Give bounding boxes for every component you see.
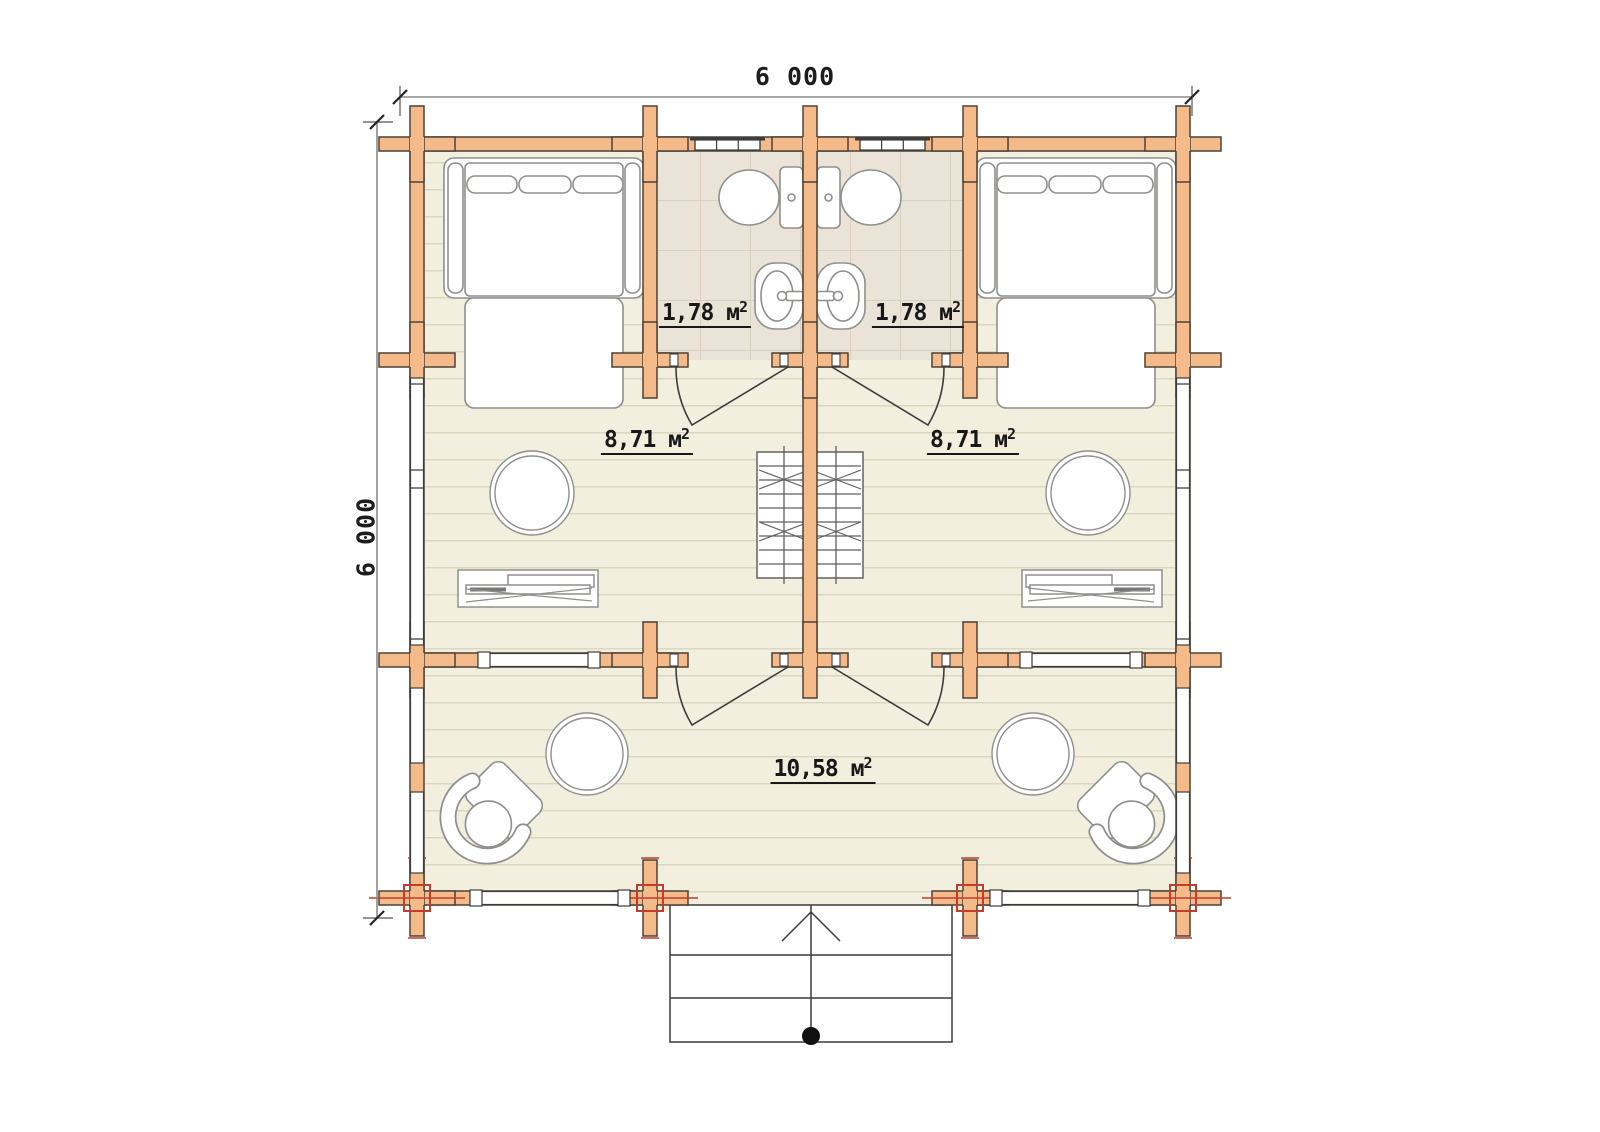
window-left-lower-a: [411, 688, 424, 763]
washbasin-right: [817, 263, 865, 329]
double-bed-left: [444, 158, 644, 408]
round-side-table-right: [1046, 451, 1130, 535]
room-area-label-bedroom-left: 8,71 м2: [601, 428, 693, 455]
window-left-upper: [411, 378, 424, 645]
round-side-table-left: [490, 451, 574, 535]
room-area-label-bedroom-right: 8,71 м2: [927, 428, 1019, 455]
window-right-lower-b: [1177, 792, 1190, 873]
toilet-left: [719, 167, 803, 228]
area-superscript: 2: [1007, 425, 1016, 443]
wall-center: [803, 137, 817, 667]
room-area-label-bathroom-left: 1,78 м2: [659, 301, 751, 328]
area-value: 1,78 м: [662, 300, 739, 326]
area-value: 8,71 м: [604, 427, 681, 453]
window-bottom-right: [990, 892, 1150, 905]
coffee-table-right: [992, 713, 1074, 795]
area-superscript: 2: [952, 298, 961, 316]
window-right-upper: [1177, 378, 1190, 645]
area-superscript: 2: [681, 425, 690, 443]
window-middle-left: [478, 654, 600, 667]
area-superscript: 2: [739, 298, 748, 316]
washbasin-left: [755, 263, 803, 329]
area-value: 8,71 м: [930, 427, 1007, 453]
area-superscript: 2: [863, 754, 872, 772]
coffee-table-left: [546, 713, 628, 795]
window-middle-right: [1020, 654, 1142, 667]
room-area-label-bathroom-right: 1,78 м2: [872, 301, 964, 328]
dimension-label-top: 6 000: [755, 62, 835, 91]
toilet-right: [817, 167, 901, 228]
dimension-label-left: 6 000: [352, 497, 381, 577]
floor-plan-canvas: 6 000 6 000 1,78 м2 1,78 м2 8,71 м2 8,71…: [0, 0, 1600, 1132]
desk-left: [458, 570, 598, 607]
window-bath-right: [860, 140, 925, 150]
area-value: 1,78 м: [875, 300, 952, 326]
double-bed-right: [976, 158, 1176, 408]
area-value: 10,58 м: [774, 756, 864, 782]
window-left-lower-b: [411, 792, 424, 873]
window-bottom-left: [470, 892, 630, 905]
window-bath-left: [695, 140, 760, 150]
entry-point-dot: [802, 1027, 820, 1045]
room-area-label-living-room: 10,58 м2: [771, 757, 876, 784]
desk-right: [1022, 570, 1162, 607]
window-right-lower-a: [1177, 688, 1190, 763]
entrance-steps: [670, 905, 952, 1045]
floor-plan-drawing: [0, 0, 1600, 1132]
